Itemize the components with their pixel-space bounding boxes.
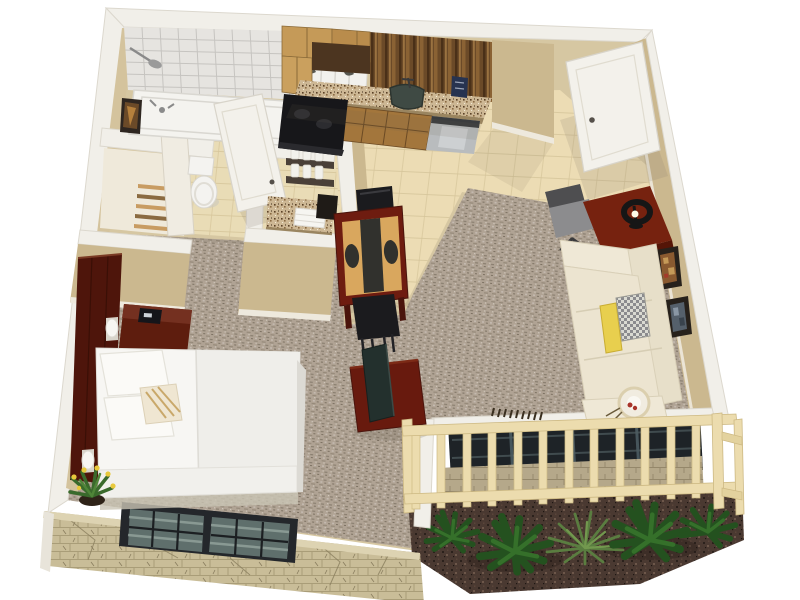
double-bed — [96, 348, 306, 510]
wall-appliance-blue — [451, 76, 468, 98]
bed-foot-drape — [99, 466, 297, 498]
scene-svg — [0, 0, 800, 600]
toilet-tank — [188, 156, 214, 176]
table-runner — [360, 218, 384, 293]
bathroom-wall-art — [120, 98, 142, 134]
stove — [278, 94, 348, 156]
accent-pillow — [140, 384, 182, 424]
clock-face — [144, 313, 152, 318]
entry-door-knob — [589, 117, 595, 123]
kitchen-sink — [390, 84, 424, 109]
wall-sconce-1 — [106, 317, 118, 341]
jars-row-2 — [291, 164, 323, 179]
pattern-pillow — [616, 293, 650, 341]
range-hood-panel — [312, 42, 370, 74]
vanity-south-wall-face — [238, 242, 336, 320]
kitchen — [278, 26, 492, 156]
floorplan-stage — [0, 0, 800, 600]
door-knob — [270, 180, 275, 185]
fence-post-right-2 — [734, 419, 744, 515]
lamp-bulb — [632, 211, 639, 218]
